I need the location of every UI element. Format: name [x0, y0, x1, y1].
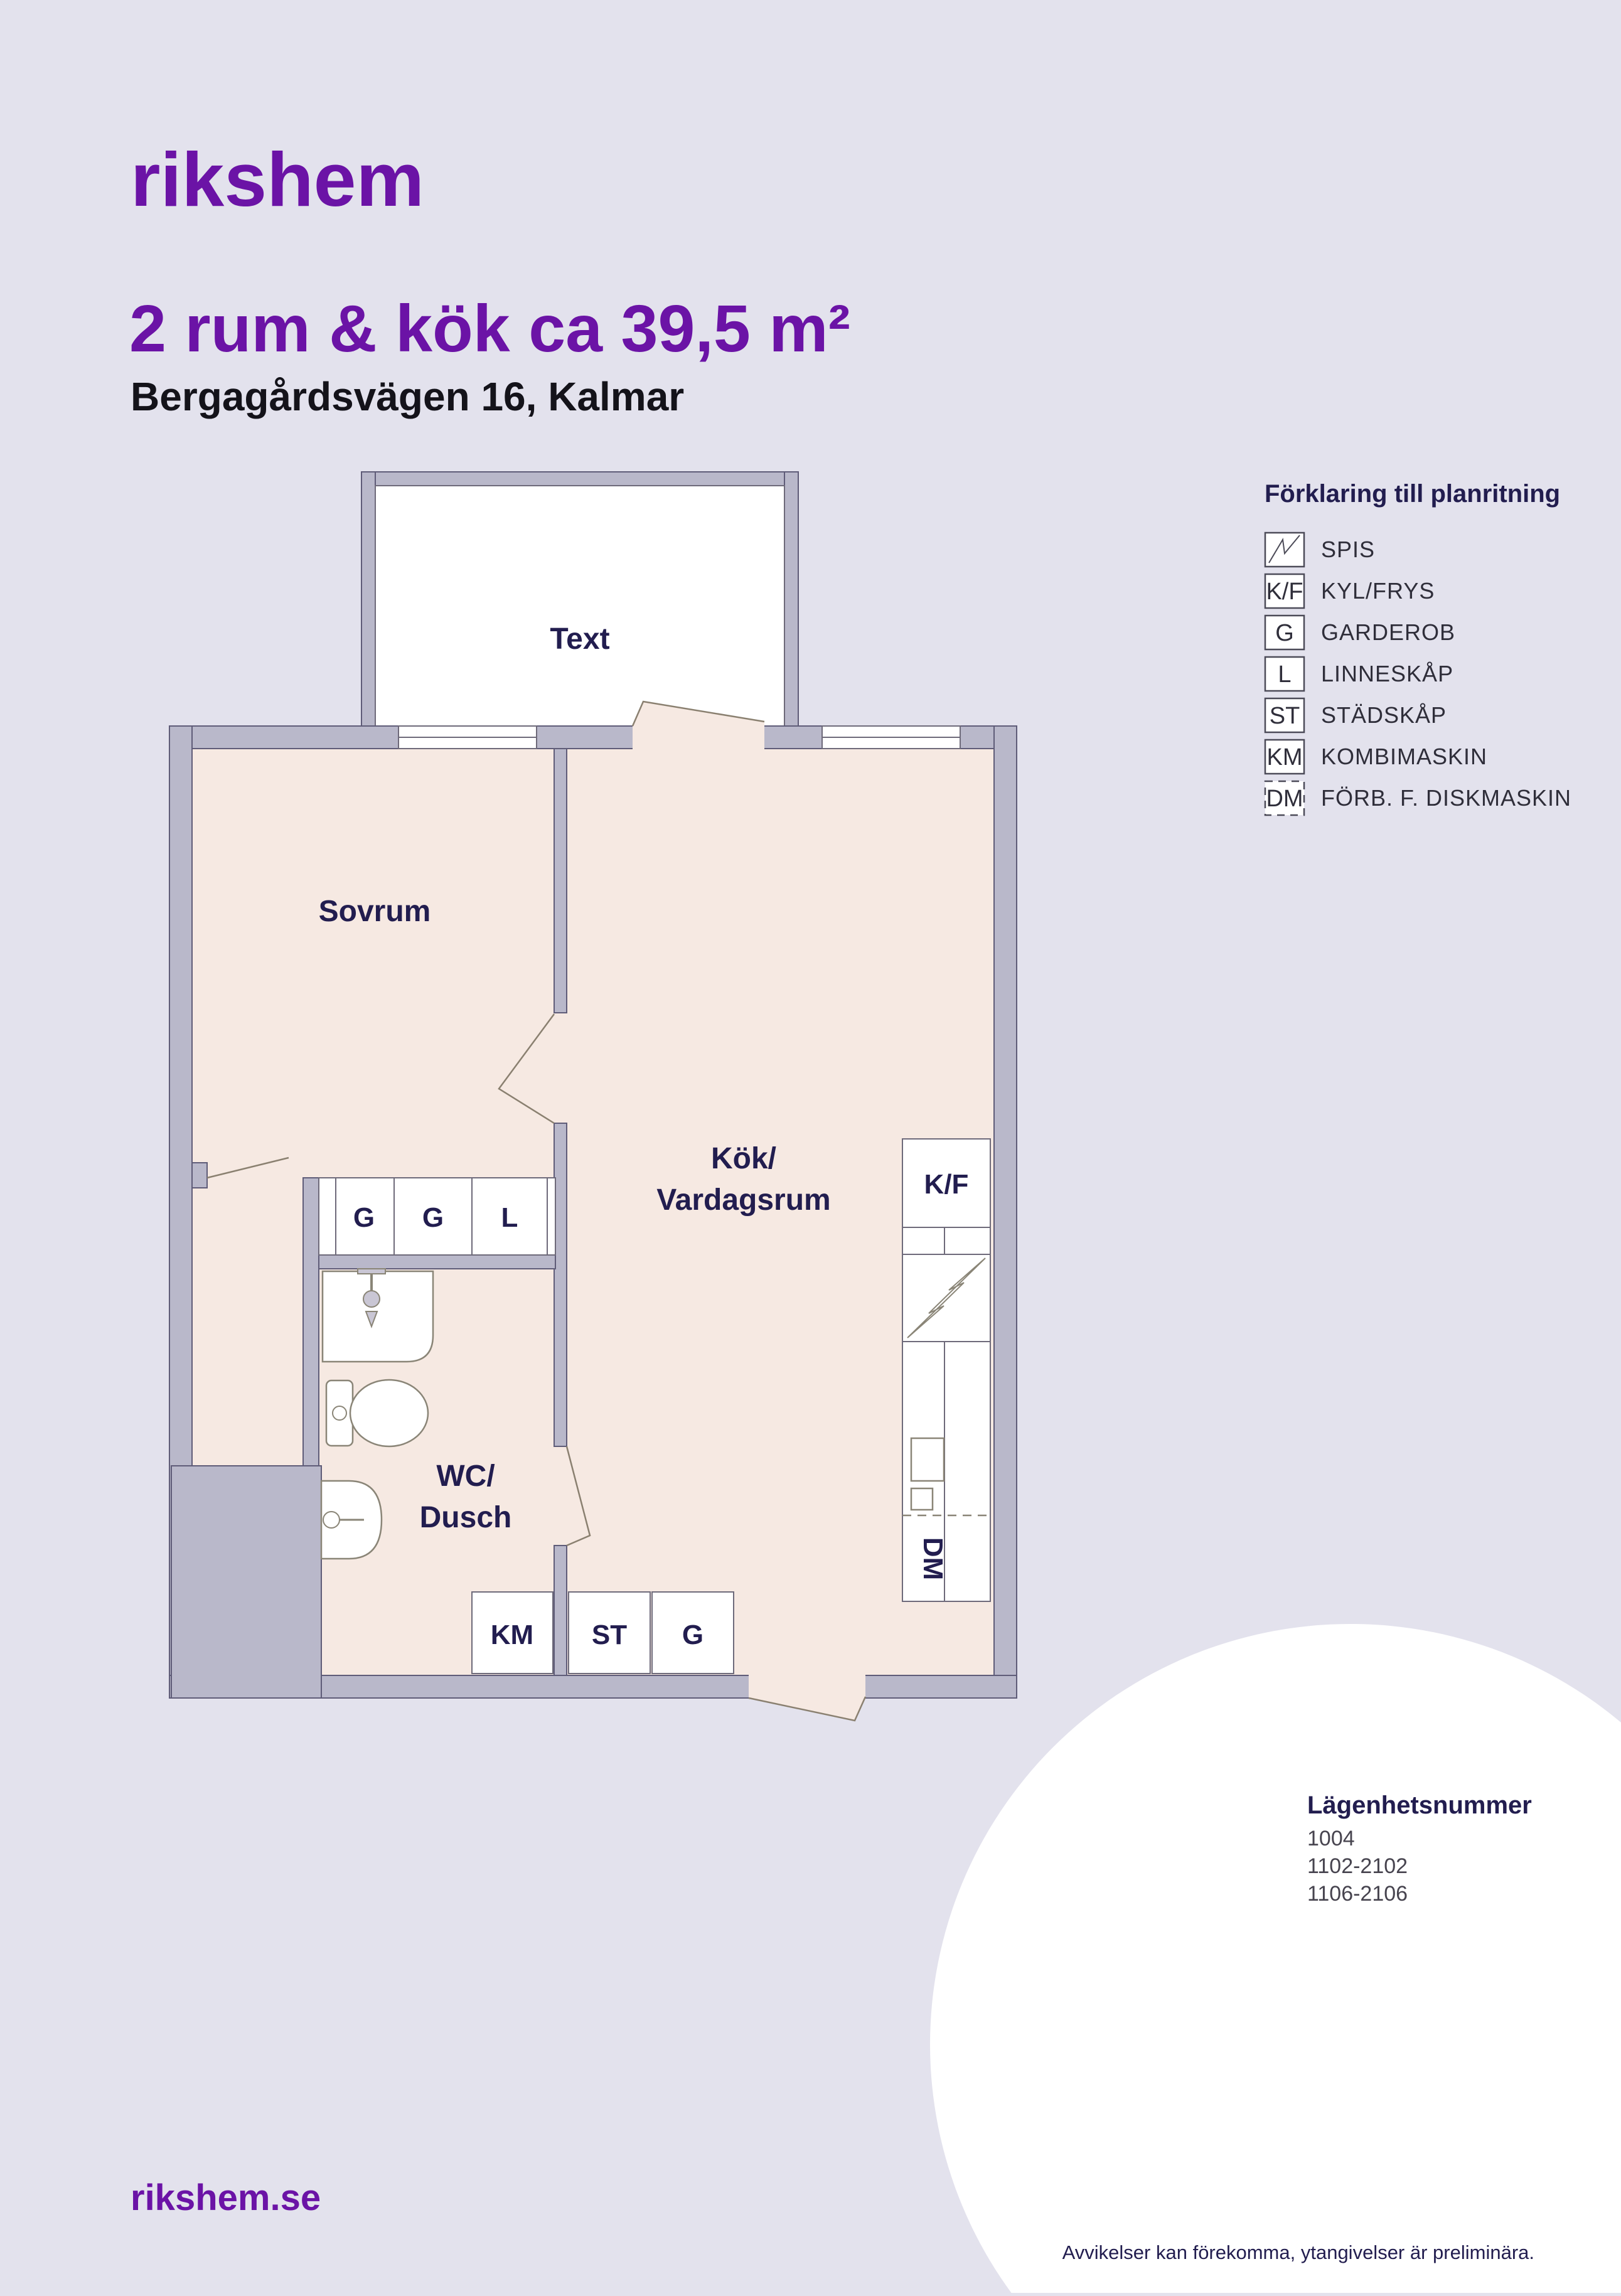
- kitchen-counter: K/F DM: [902, 1139, 990, 1601]
- balcony-wall-left: [361, 472, 375, 726]
- kitchen-sink-small-basin: [911, 1488, 933, 1510]
- kitchen-label-line2: Vardagsrum: [656, 1183, 830, 1217]
- legend-symbol-st: ST: [1270, 703, 1300, 729]
- dishwasher-label: DM: [917, 1537, 948, 1580]
- interior-wall-bathroom-top: [319, 1255, 555, 1269]
- wall-stub-bedroom-door: [192, 1163, 207, 1188]
- legend-label-diskmaskin: FÖRB. F. DISKMASKIN: [1321, 785, 1571, 811]
- apartment-number-3: 1106-2106: [1307, 1882, 1408, 1906]
- interior-wall-alcove-divider: [303, 1178, 319, 1466]
- legend-label-spis: SPIS: [1321, 537, 1375, 562]
- page-title: 2 rum & kök ca 39,5 m²: [129, 292, 850, 366]
- st-unit-label: ST: [592, 1620, 627, 1650]
- g-unit-label: G: [682, 1620, 704, 1650]
- legend-symbol-km: KM: [1267, 744, 1303, 771]
- interior-wall-central-lower: [554, 1546, 567, 1675]
- legend-row-linneskap: L LINNESKÅP: [1265, 657, 1453, 691]
- closet-l-label: L: [501, 1202, 518, 1233]
- kitchen-label-line1: Kök/: [711, 1142, 776, 1175]
- balcony-label: Text: [550, 622, 609, 656]
- legend-row-kombimaskin: KM KOMBIMASKIN: [1265, 740, 1487, 774]
- legend-symbol-l: L: [1278, 661, 1291, 688]
- legend-label-kombimaskin: KOMBIMASKIN: [1321, 744, 1487, 769]
- bathroom-label-line1: WC/: [436, 1460, 495, 1493]
- closet-row: G G L: [319, 1178, 555, 1255]
- washbasin: [321, 1481, 382, 1559]
- bedroom-label: Sovrum: [319, 895, 431, 928]
- window-right: [822, 726, 960, 749]
- kitchen-sink-basin: [911, 1438, 944, 1481]
- legend-label-kylfrys: KYL/FRYS: [1321, 578, 1435, 604]
- legend-symbol-kf: K/F: [1266, 579, 1303, 605]
- wall-block-bottom-left: [171, 1466, 321, 1698]
- legend-row-stadskap: ST STÄDSKÅP: [1265, 698, 1447, 732]
- apartment-number-2: 1102-2102: [1307, 1854, 1408, 1878]
- legend-label-stadskap: STÄDSKÅP: [1321, 702, 1447, 728]
- legend-title: Förklaring till planritning: [1265, 480, 1560, 508]
- km-unit-label: KM: [491, 1620, 533, 1650]
- fridge-freezer-label: K/F: [924, 1169, 969, 1200]
- balcony: Text: [361, 472, 798, 726]
- apartment-number-1: 1004: [1307, 1827, 1355, 1850]
- legend-label-linneskap: LINNESKÅP: [1321, 661, 1453, 686]
- page-subtitle: Bergagårdsvägen 16, Kalmar: [131, 374, 684, 419]
- closet-g1-label: G: [353, 1202, 375, 1233]
- bottom-units: KM ST G: [472, 1592, 734, 1674]
- document-canvas: rikshem 2 rum & kök ca 39,5 m² Bergagård…: [0, 0, 1621, 2293]
- bathroom-label-line2: Dusch: [420, 1501, 512, 1534]
- balcony-wall-top: [361, 472, 798, 486]
- legend-symbol-g: G: [1275, 620, 1294, 646]
- legend-label-garderob: GARDEROB: [1321, 619, 1455, 645]
- footer-disclaimer: Avvikelser kan förekomma, ytangivelser ä…: [1062, 2241, 1534, 2263]
- closet-g2-label: G: [422, 1202, 444, 1233]
- floorplan-document: rikshem 2 rum & kök ca 39,5 m² Bergagård…: [0, 0, 1621, 2293]
- footer-site-link: rikshem.se: [131, 2177, 321, 2218]
- rikshem-logo: rikshem: [131, 137, 424, 222]
- interior-wall-central-upper: [554, 749, 567, 1013]
- window-left: [399, 726, 537, 749]
- balcony-wall-right: [784, 472, 798, 726]
- interior-wall-central-middle: [554, 1123, 567, 1446]
- balcony-interior: [375, 486, 784, 726]
- outer-wall-right: [994, 726, 1017, 1698]
- shower-area: [323, 1271, 433, 1362]
- apartment-numbers-title: Lägenhetsnummer: [1307, 1791, 1532, 1819]
- toilet: [326, 1380, 428, 1446]
- legend-row-garderob: G GARDEROB: [1265, 616, 1455, 649]
- legend-row-kylfrys: K/F KYL/FRYS: [1265, 574, 1435, 608]
- legend-symbol-dm: DM: [1266, 786, 1303, 812]
